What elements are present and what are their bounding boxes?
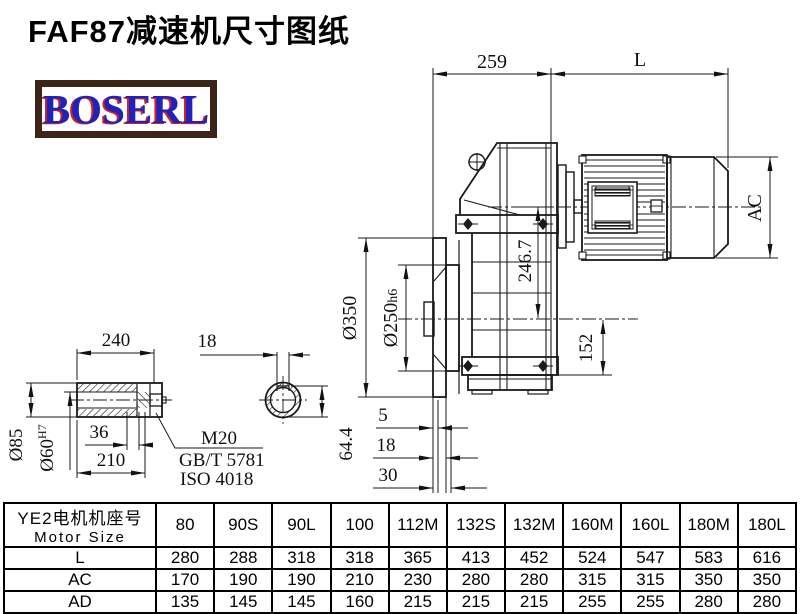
dim-value: 135 (156, 591, 214, 613)
dim-L: L (634, 49, 646, 71)
dim-246-7: 246.7 (515, 240, 536, 283)
motor-size-column: 160L (621, 503, 679, 547)
drawing-sheet: FAF87减速机尺寸图纸 BOSERL (0, 0, 800, 614)
dim-value: 145 (214, 591, 272, 613)
motor-size-column: 160M (563, 503, 621, 547)
label-iso: ISO 4018 (180, 469, 253, 490)
motor-size-column: 180M (680, 503, 738, 547)
dim-value: 350 (738, 569, 796, 591)
motor-size-header-en: Motor Size (5, 529, 155, 546)
motor-size-column: 132S (447, 503, 505, 547)
dimension-lines (26, 68, 778, 493)
dim-value: 280 (680, 591, 738, 613)
motor-size-column: 90L (272, 503, 330, 547)
dim-value: 583 (680, 547, 738, 569)
dim-value: 280 (738, 591, 796, 613)
dim-value: 145 (272, 591, 330, 613)
motor-size-column: 90S (214, 503, 272, 547)
dim-64-4: 64.4 (336, 427, 357, 461)
fan-cowl (667, 157, 728, 258)
dim-259: 259 (477, 51, 507, 73)
dim-value: 315 (621, 569, 679, 591)
motor-size-column: 112M (389, 503, 447, 547)
motor-size-column: 180L (738, 503, 796, 547)
dim-60H7: Ø60H7 (35, 424, 58, 471)
dim-250h6: Ø250h6 (380, 289, 402, 347)
dim-value: 215 (447, 591, 505, 613)
dim-value: 318 (331, 547, 389, 569)
table-row: AC170190190210230280280315315350350 (4, 569, 796, 591)
size-table-wrap: YE2电机机座号 Motor Size 8090S90L100112M132S1… (3, 502, 797, 614)
size-table: YE2电机机座号 Motor Size 8090S90L100112M132S1… (3, 502, 797, 614)
dim-value: 190 (214, 569, 272, 591)
dim-value: 255 (563, 591, 621, 613)
dim-152: 152 (576, 334, 597, 363)
dim-AC: AC (744, 194, 766, 222)
dim-value: 215 (389, 591, 447, 613)
dimension-labels: 259 L AC 246.7 152 Ø350 Ø250h6 5 18 30 2… (6, 49, 766, 490)
dim-240: 240 (102, 330, 131, 351)
table-header-row: YE2电机机座号 Motor Size 8090S90L100112M132S1… (4, 503, 796, 547)
dim-value: 255 (621, 591, 679, 613)
dim-value: 190 (272, 569, 330, 591)
dim-value: 170 (156, 569, 214, 591)
reducer-housing (424, 143, 582, 397)
dim-value: 280 (156, 547, 214, 569)
row-label: AC (4, 569, 156, 591)
row-label: AD (4, 591, 156, 613)
dim-value: 315 (563, 569, 621, 591)
dim-18-keyway: 18 (198, 331, 217, 352)
dim-value: 413 (447, 547, 505, 569)
dim-30: 30 (379, 465, 398, 486)
terminal-box (588, 182, 637, 233)
label-gbt: GB/T 5781 (179, 450, 265, 471)
dim-value: 524 (563, 547, 621, 569)
dim-value: 288 (214, 547, 272, 569)
motor-size-header: YE2电机机座号 Motor Size (4, 503, 156, 547)
dim-value: 280 (505, 569, 563, 591)
dim-value: 230 (389, 569, 447, 591)
label-M20: M20 (201, 428, 237, 449)
motor-size-column: 100 (331, 503, 389, 547)
dim-value: 547 (621, 547, 679, 569)
table-row: L280288318318365413452524547583616 (4, 547, 796, 569)
dim-value: 280 (447, 569, 505, 591)
row-label: L (4, 547, 156, 569)
dim-5: 5 (378, 405, 388, 426)
dim-value: 452 (505, 547, 563, 569)
dim-value: 215 (505, 591, 563, 613)
dim-36: 36 (90, 422, 109, 443)
motor-size-column: 80 (156, 503, 214, 547)
dim-value: 210 (331, 569, 389, 591)
dim-350: Ø350 (339, 296, 361, 340)
dim-18-flange: 18 (377, 435, 396, 456)
motor-size-column: 132M (505, 503, 563, 547)
dim-value: 616 (738, 547, 796, 569)
table-row: AD135145145160215215215255255280280 (4, 591, 796, 613)
motor (579, 155, 728, 260)
dim-value: 160 (331, 591, 389, 613)
dim-value: 350 (680, 569, 738, 591)
dim-value: 318 (272, 547, 330, 569)
dim-85: Ø85 (6, 429, 27, 462)
dim-value: 365 (389, 547, 447, 569)
dim-210: 210 (97, 450, 126, 471)
motor-size-header-cn: YE2电机机座号 (5, 504, 155, 529)
centerlines (70, 207, 762, 424)
